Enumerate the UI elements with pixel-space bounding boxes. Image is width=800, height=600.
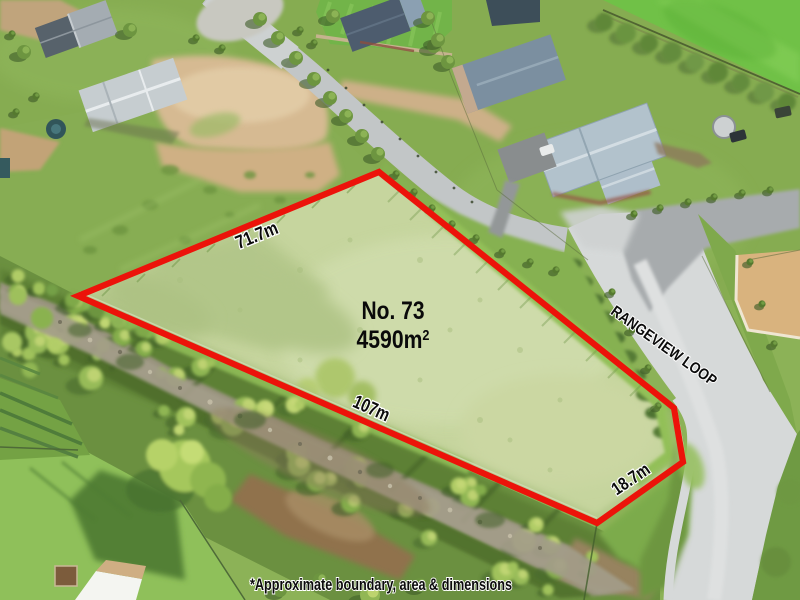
svg-text:No. 73: No. 73 <box>362 297 425 325</box>
svg-text:4590m2: 4590m2 <box>357 326 430 354</box>
svg-text:*Approximate boundary, area &: *Approximate boundary, area & dimensions <box>250 575 512 594</box>
